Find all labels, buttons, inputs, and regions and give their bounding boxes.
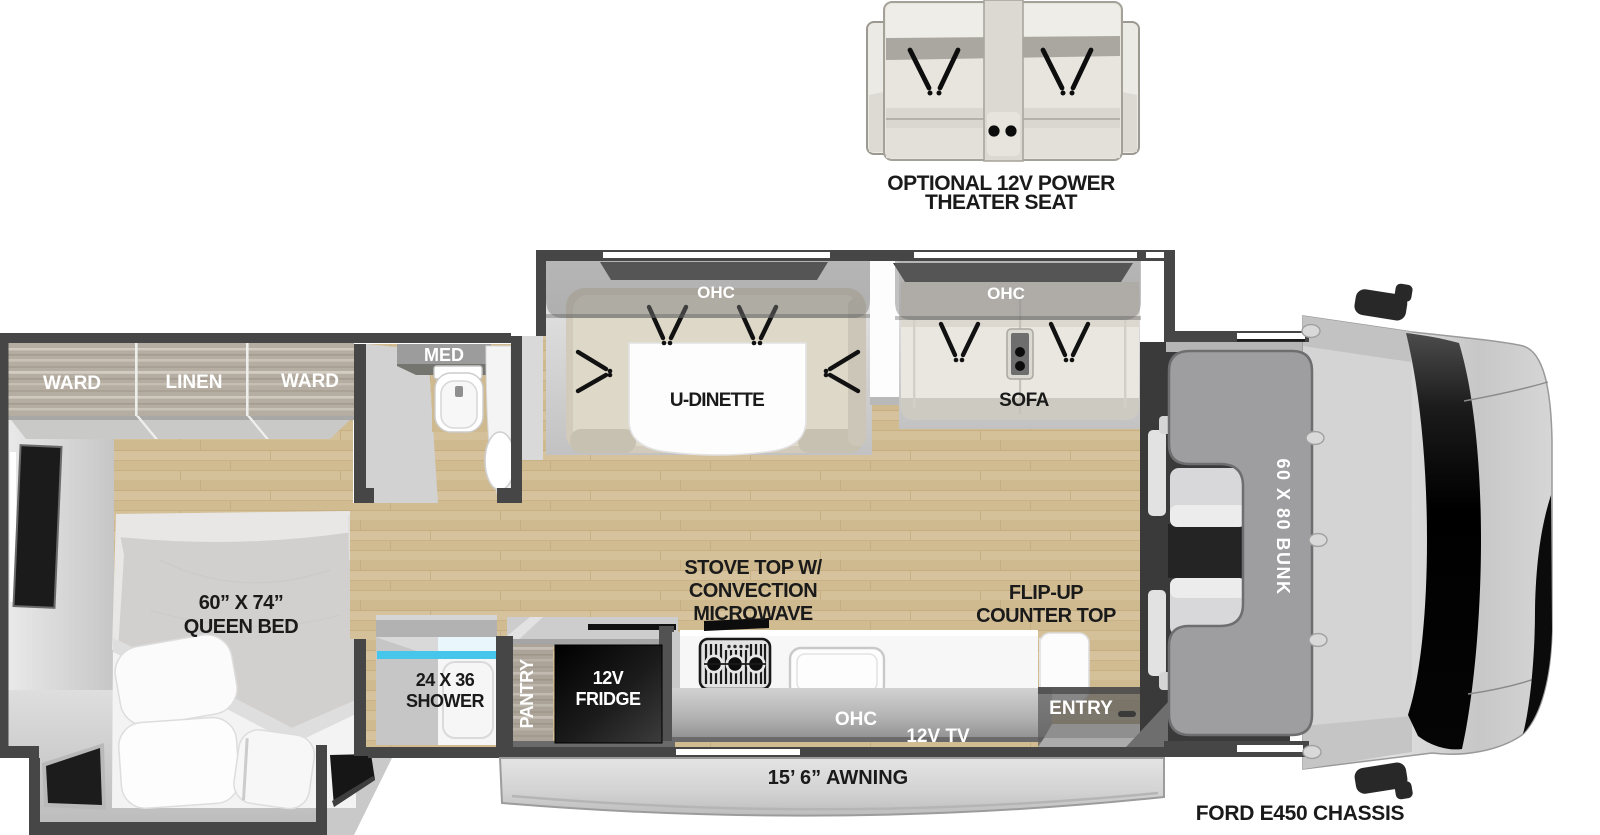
svg-text:FRIDGE: FRIDGE xyxy=(575,689,640,709)
svg-text:FORD E450 CHASSIS: FORD E450 CHASSIS xyxy=(1196,802,1405,825)
svg-text:U-DINETTE: U-DINETTE xyxy=(670,390,764,411)
svg-text:OHC: OHC xyxy=(835,709,878,730)
svg-text:CONVECTION: CONVECTION xyxy=(689,580,817,602)
svg-text:COUNTER TOP: COUNTER TOP xyxy=(976,605,1116,627)
svg-text:THEATER SEAT: THEATER SEAT xyxy=(925,191,1078,214)
svg-text:60 X 80 BUNK: 60 X 80 BUNK xyxy=(1273,458,1293,595)
svg-text:MICROWAVE: MICROWAVE xyxy=(693,603,813,625)
svg-text:ENTRY: ENTRY xyxy=(1049,698,1113,719)
svg-text:SOFA: SOFA xyxy=(999,390,1050,411)
svg-text:MED: MED xyxy=(424,345,464,365)
svg-text:FLIP-UP: FLIP-UP xyxy=(1009,582,1083,604)
svg-text:OHC: OHC xyxy=(697,283,735,302)
svg-text:LINEN: LINEN xyxy=(166,372,223,393)
svg-text:WARD: WARD xyxy=(281,371,339,392)
svg-text:SHOWER: SHOWER xyxy=(406,691,485,711)
svg-text:PANTRY: PANTRY xyxy=(517,659,537,728)
svg-text:STOVE TOP W/: STOVE TOP W/ xyxy=(684,557,822,579)
svg-text:QUEEN BED: QUEEN BED xyxy=(184,616,298,638)
svg-text:24 X 36: 24 X 36 xyxy=(416,670,475,690)
svg-text:WARD: WARD xyxy=(43,373,101,394)
svg-text:OHC: OHC xyxy=(987,284,1025,303)
svg-text:60” X 74”: 60” X 74” xyxy=(199,592,283,614)
svg-text:15’ 6” AWNING: 15’ 6” AWNING xyxy=(768,767,908,789)
svg-text:12V: 12V xyxy=(593,668,624,688)
svg-text:12V TV: 12V TV xyxy=(906,726,970,747)
